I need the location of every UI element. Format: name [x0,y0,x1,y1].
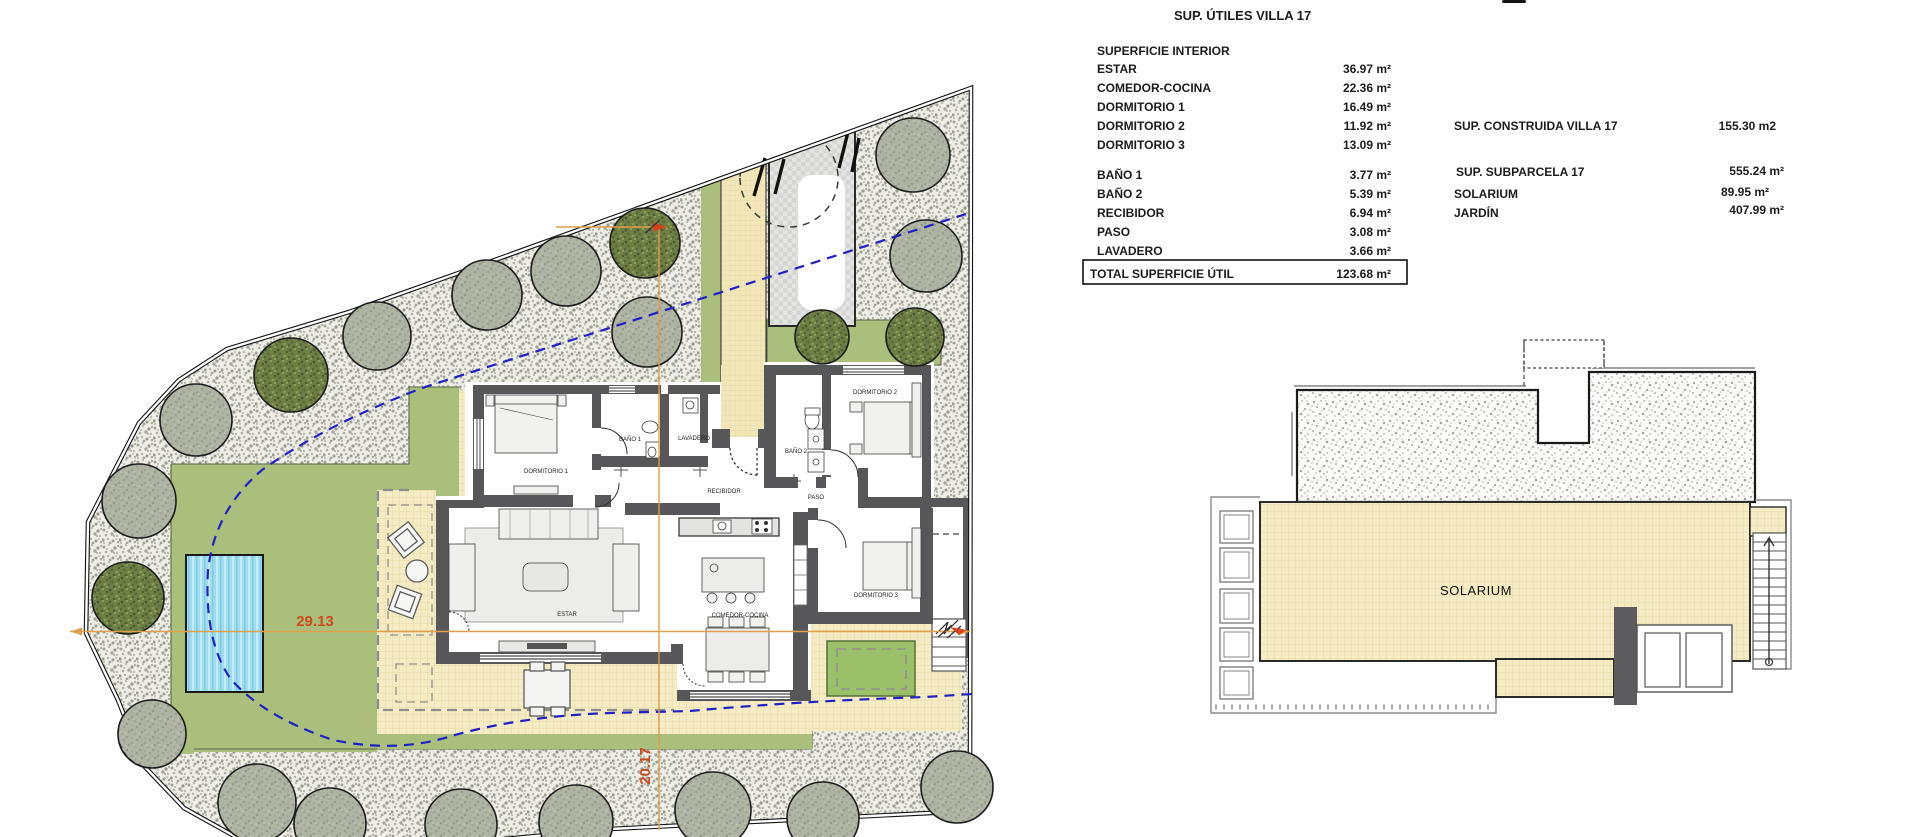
svg-text:LAVADERO: LAVADERO [1097,244,1163,258]
svg-text:11.92 m²: 11.92 m² [1344,119,1391,133]
svg-text:DORMITORIO 3: DORMITORIO 3 [854,593,899,599]
svg-text:407.99 m²: 407.99 m² [1729,203,1784,217]
svg-text:16.49 m²: 16.49 m² [1343,100,1391,114]
svg-text:RECIBIDOR: RECIBIDOR [707,489,741,495]
svg-text:3.77 m²: 3.77 m² [1350,168,1391,182]
svg-text:22.36 m²: 22.36 m² [1343,81,1391,95]
svg-text:SUP. ÚTILES VILLA 17: SUP. ÚTILES VILLA 17 [1174,8,1311,23]
svg-text:20.17: 20.17 [637,747,654,785]
svg-text:DORMITORIO 3: DORMITORIO 3 [1097,138,1185,152]
svg-text:123.68 m²: 123.68 m² [1336,267,1391,281]
svg-text:555.24 m²: 555.24 m² [1729,164,1784,178]
svg-text:29.13: 29.13 [296,613,334,630]
svg-text:36.97 m²: 36.97 m² [1343,62,1391,76]
svg-text:SOLARIUM: SOLARIUM [1440,583,1512,598]
svg-text:6.94 m²: 6.94 m² [1350,206,1391,220]
svg-text:JARDÍN: JARDÍN [1454,205,1499,220]
svg-text:13.09 m²: 13.09 m² [1343,138,1391,152]
svg-text:3.66 m²: 3.66 m² [1350,244,1391,258]
svg-text:ESTAR: ESTAR [557,612,577,618]
svg-text:RECIBIDOR: RECIBIDOR [1097,206,1165,220]
svg-text:PASO: PASO [808,495,825,501]
svg-text:COMEDOR-COCINA: COMEDOR-COCINA [712,613,769,619]
svg-text:DORMITORIO 1: DORMITORIO 1 [1097,100,1185,114]
svg-text:COMEDOR-COCINA: COMEDOR-COCINA [1097,81,1211,95]
svg-text:SUP. SUBPARCELA 17: SUP. SUBPARCELA 17 [1456,165,1585,179]
svg-text:PASO: PASO [1097,225,1130,239]
svg-text:BAÑO 2: BAÑO 2 [1097,186,1143,201]
svg-text:SUP. CONSTRUIDA VILLA 17: SUP. CONSTRUIDA VILLA 17 [1454,119,1618,133]
svg-text:DORMITORIO 2: DORMITORIO 2 [1097,119,1185,133]
svg-text:DORMITORIO 2: DORMITORIO 2 [853,390,898,396]
svg-text:BAÑO 1: BAÑO 1 [1097,167,1143,182]
svg-text:SOLARIUM: SOLARIUM [1454,187,1518,201]
svg-text:89.95 m²: 89.95 m² [1721,185,1769,199]
svg-text:SUPERFICIE INTERIOR: SUPERFICIE INTERIOR [1097,44,1230,58]
svg-text:LAVADERO: LAVADERO [678,436,710,442]
svg-text:BAÑO 2: BAÑO 2 [785,448,808,455]
svg-text:5.39 m²: 5.39 m² [1350,187,1391,201]
svg-text:BAÑO 1: BAÑO 1 [619,436,642,443]
svg-text:DORMITORIO 1: DORMITORIO 1 [524,469,569,475]
svg-text:TOTAL SUPERFICIE ÚTIL: TOTAL SUPERFICIE ÚTIL [1090,266,1234,281]
svg-text:ESTAR: ESTAR [1097,62,1137,76]
svg-text:3.08 m²: 3.08 m² [1350,225,1391,239]
svg-text:155.30 m2: 155.30 m2 [1719,119,1777,133]
